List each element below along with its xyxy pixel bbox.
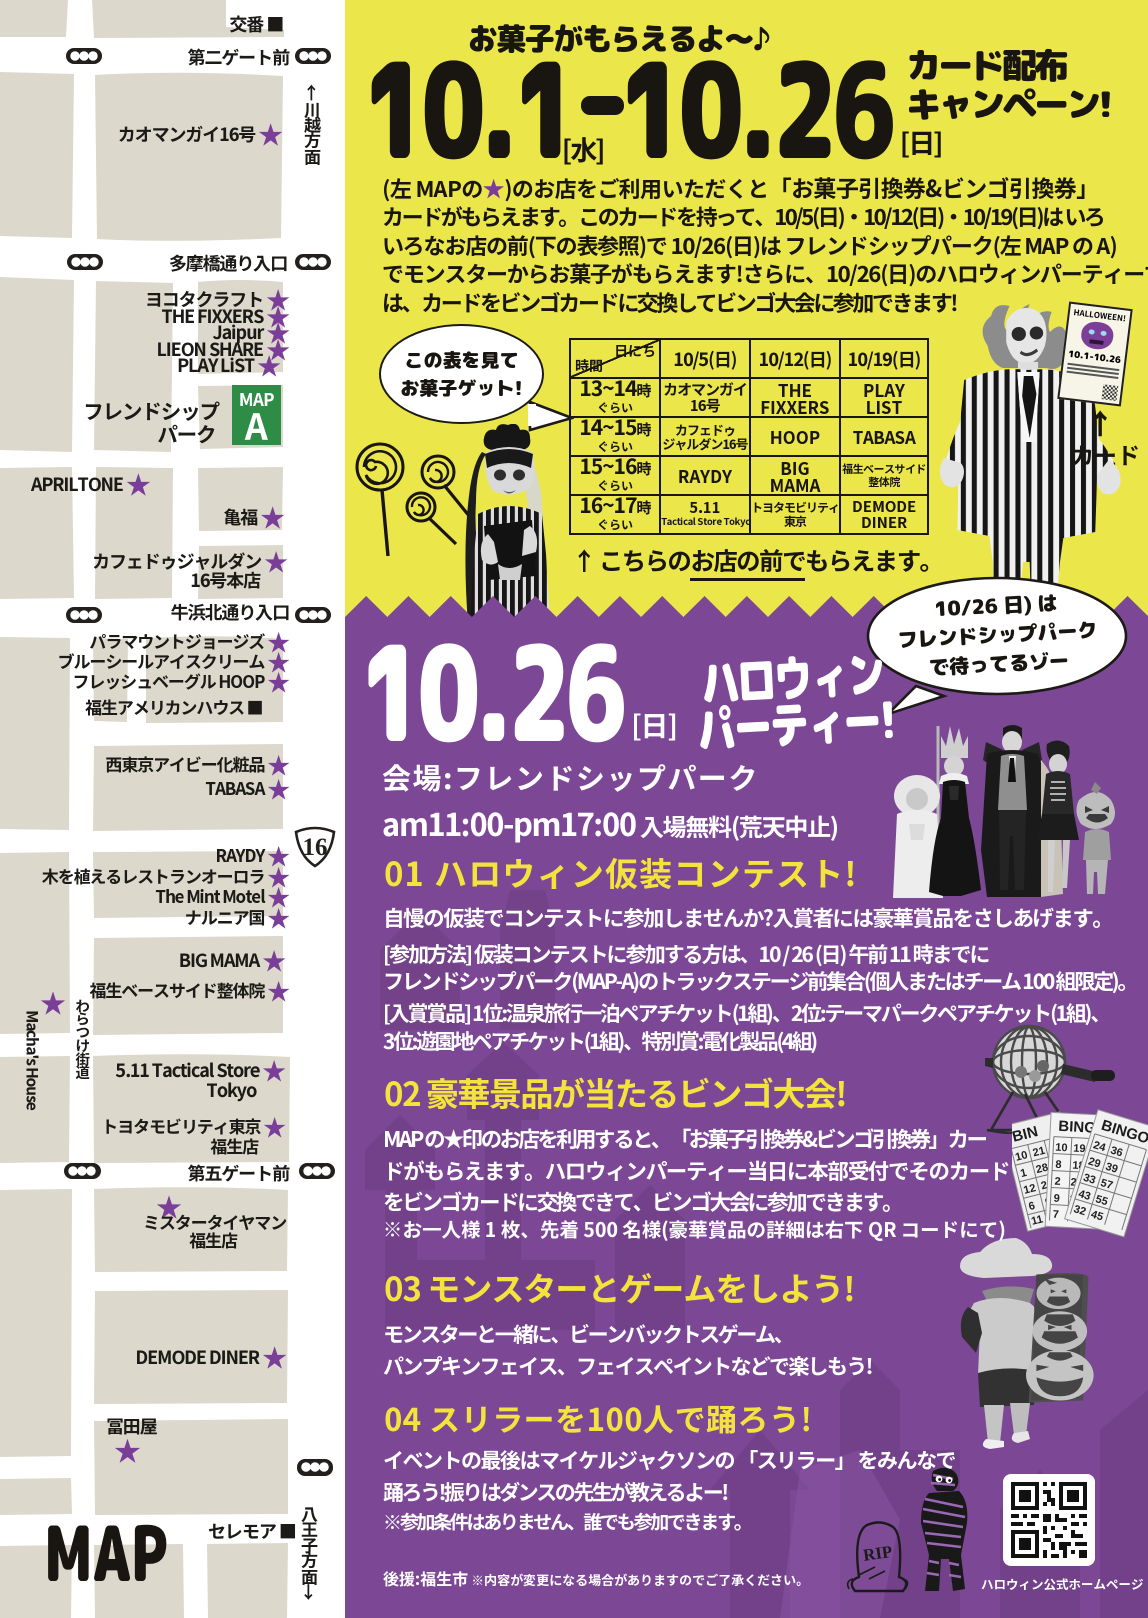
svg-text:10: 10 <box>1055 1142 1068 1155</box>
svg-text:8: 8 <box>1055 1159 1062 1171</box>
svg-text:16: 16 <box>303 834 328 861</box>
svg-text:7: 7 <box>1052 1209 1059 1221</box>
svg-text:2: 2 <box>1054 1176 1061 1188</box>
svg-text:19: 19 <box>1073 1143 1086 1156</box>
svg-text:9: 9 <box>1053 1193 1060 1205</box>
svg-text:RIP: RIP <box>862 1542 894 1565</box>
